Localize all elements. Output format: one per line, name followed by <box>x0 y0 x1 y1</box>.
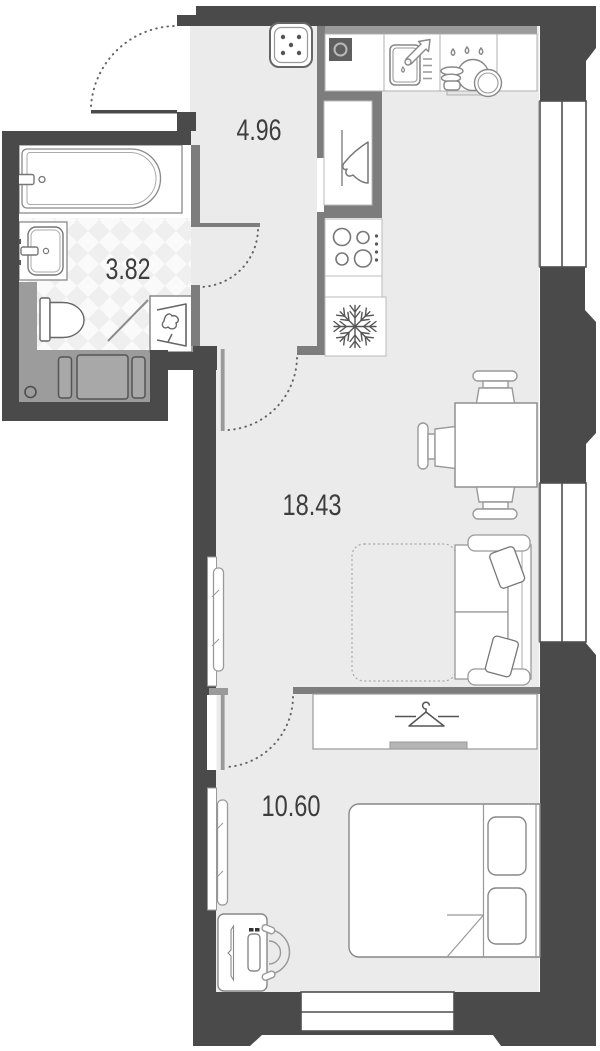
svg-text:10.60: 10.60 <box>262 790 321 823</box>
svg-text:3.82: 3.82 <box>106 253 151 286</box>
svg-text:4.96: 4.96 <box>237 114 282 147</box>
svg-text:18.43: 18.43 <box>283 489 342 522</box>
